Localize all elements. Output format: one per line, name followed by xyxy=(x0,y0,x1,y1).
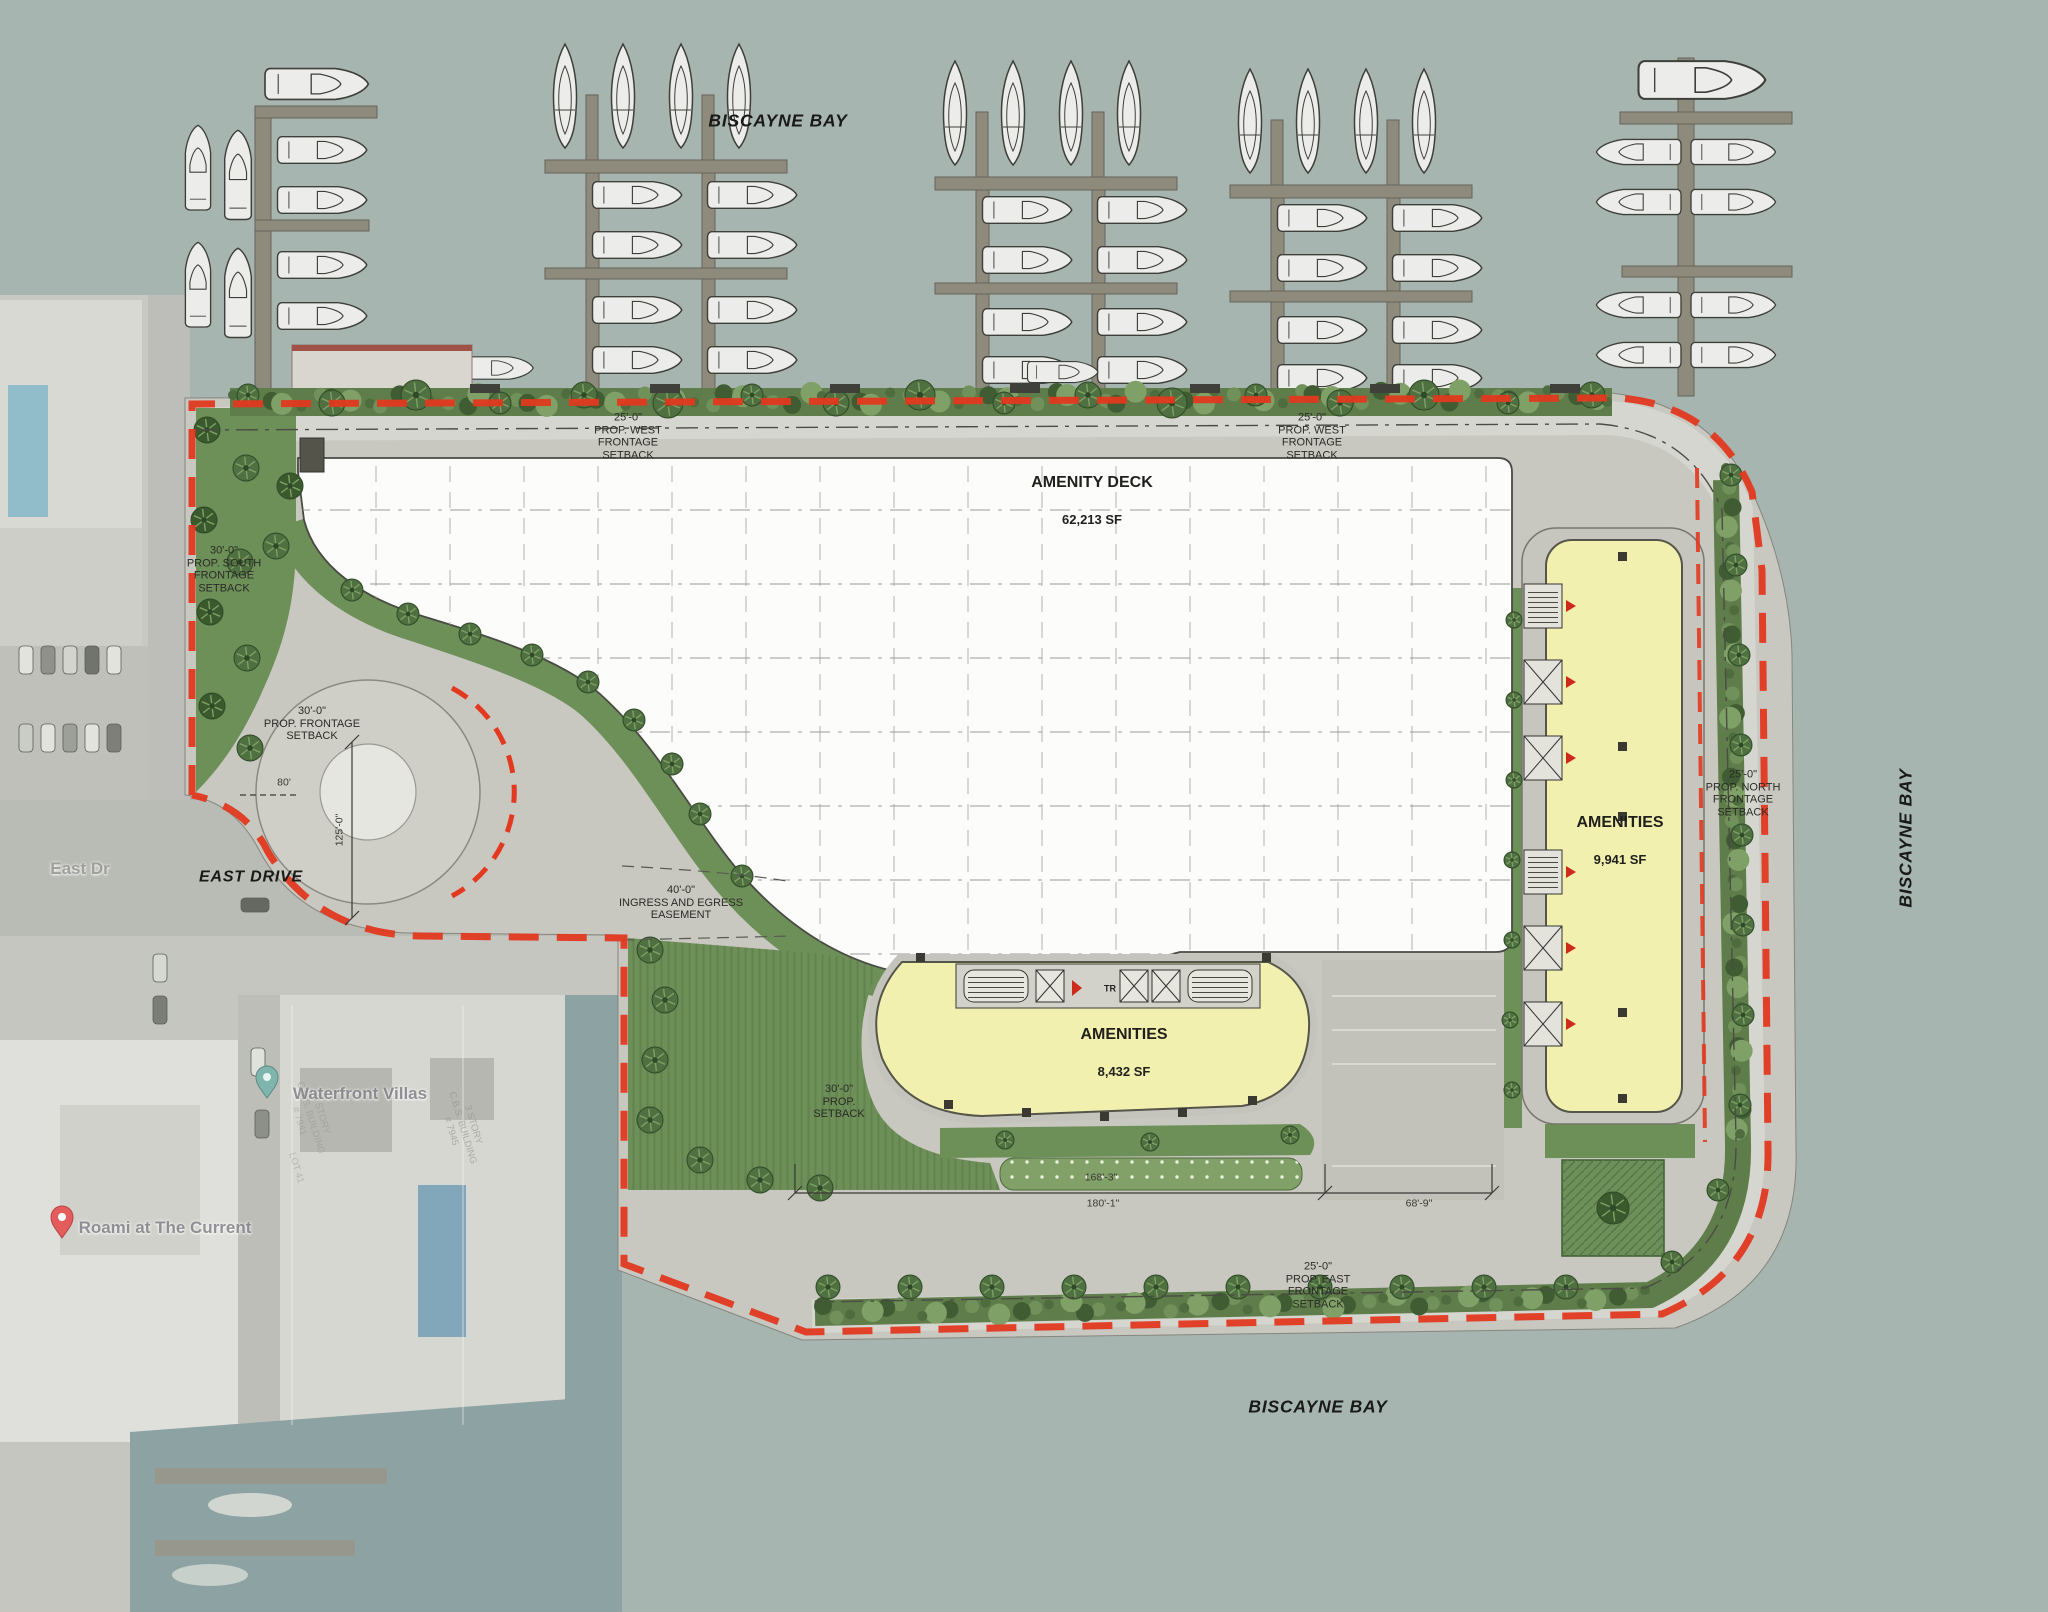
center-core xyxy=(956,964,1260,1008)
site-plan-drawing xyxy=(0,0,2048,1612)
amenities-center-building xyxy=(876,953,1309,1121)
parking-court xyxy=(1322,960,1504,1200)
site-plan-canvas: BISCAYNE BAY BISCAYNE BAY BISCAYNE BAY A… xyxy=(0,0,2048,1612)
amenities-east-building xyxy=(1522,528,1704,1124)
existing-dock-structure xyxy=(292,345,472,393)
